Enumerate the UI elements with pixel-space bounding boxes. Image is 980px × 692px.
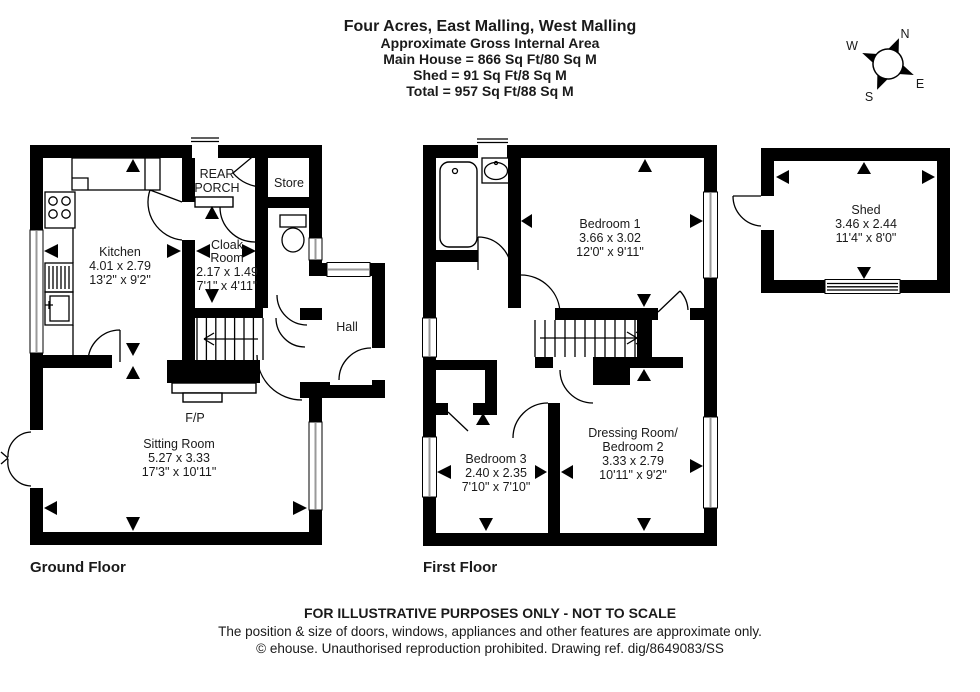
wash-basin (482, 158, 510, 183)
staircase-ground (197, 318, 263, 360)
rear-porch-label-1: REAR (200, 167, 235, 181)
sitting-room-french-door-opening (30, 430, 44, 488)
shed-label: Shed (851, 203, 880, 217)
bedroom-2-dims-imperial: 10'11" x 9'2" (599, 468, 667, 482)
footer-block: FOR ILLUSTRATIVE PURPOSES ONLY - NOT TO … (218, 605, 762, 656)
area-shed: Shed = 91 Sq Ft/8 Sq M (413, 67, 567, 83)
area-total: Total = 957 Sq Ft/88 Sq M (406, 83, 573, 99)
shed-plan: Shed 3.46 x 2.44 11'4" x 8'0" (733, 148, 950, 294)
compass-north-label: N (900, 27, 909, 41)
bedroom-3-dims-imperial: 7'10" x 7'10" (462, 480, 531, 494)
porch-doorway-opening (192, 145, 218, 159)
cloak-room-dims-metric: 2.17 x 1.49 (196, 265, 258, 279)
ground-floor-title: Ground Floor (30, 559, 126, 576)
sitting-room-label: Sitting Room (143, 437, 215, 451)
cooker-hob (45, 192, 75, 228)
area-main-house: Main House = 866 Sq Ft/80 Sq M (383, 51, 597, 67)
cloak-room-label-2: Room (210, 251, 243, 265)
toilet (280, 215, 306, 252)
shed-door-opening (761, 196, 775, 230)
shed-dims-metric: 3.46 x 2.44 (835, 217, 897, 231)
kitchen-sink (45, 263, 73, 325)
sitting-room-dims-metric: 5.27 x 3.33 (148, 451, 210, 465)
kitchen-label: Kitchen (99, 245, 141, 259)
compass-east-label: E (916, 77, 924, 91)
bedroom-2-label-1: Dressing Room/ (588, 426, 678, 440)
compass-rose-icon: N W E S (846, 27, 925, 104)
bedroom-3-label: Bedroom 3 (465, 452, 526, 466)
bedroom-2-dims-metric: 3.33 x 2.79 (602, 454, 664, 468)
porch-step-lines (191, 138, 219, 142)
front-door-opening (372, 348, 386, 380)
bath-tub (440, 162, 477, 247)
store-label: Store (274, 176, 304, 190)
bedroom-1-label: Bedroom 1 (579, 217, 640, 231)
bathroom-window (478, 145, 507, 159)
compass-west-label: W (846, 39, 858, 53)
sitting-room-dims-imperial: 17'3" x 10'11" (142, 465, 217, 479)
cloak-room-label-1: Cloak (211, 238, 244, 252)
page-subtitle: Approximate Gross Internal Area (381, 35, 600, 51)
first-floor-plan: Bedroom 1 3.66 x 3.02 12'0" x 9'11" Bedr… (423, 139, 718, 576)
footer-copyright: © ehouse. Unauthorised reproduction proh… (256, 641, 724, 656)
first-floor-title: First Floor (423, 559, 497, 576)
ground-floor-plan: Kitchen 4.01 x 2.79 13'2" x 9'2" REAR PO… (1, 138, 386, 576)
shed-dims-imperial: 11'4" x 8'0" (836, 231, 897, 245)
compass-south-label: S (865, 90, 873, 104)
bedroom-1-dims-imperial: 12'0" x 9'11" (576, 245, 644, 259)
hall-label: Hall (336, 320, 358, 334)
footer-disclaimer: FOR ILLUSTRATIVE PURPOSES ONLY - NOT TO … (304, 605, 676, 621)
porch-threshold (195, 197, 233, 207)
cloak-room-dims-imperial: 7'1" x 4'11" (197, 279, 258, 293)
fireplace (167, 360, 260, 402)
bedroom-1-dims-metric: 3.66 x 3.02 (579, 231, 641, 245)
rear-porch-label-2: PORCH (194, 181, 239, 195)
page-title: Four Acres, East Malling, West Malling (344, 18, 637, 35)
shed-door-swing (733, 196, 761, 226)
floorplan-page: Four Acres, East Malling, West Malling A… (0, 0, 980, 692)
title-block: Four Acres, East Malling, West Malling A… (344, 18, 637, 99)
kitchen-dims-imperial: 13'2" x 9'2" (89, 273, 151, 287)
footer-approximate: The position & size of doors, windows, a… (218, 624, 762, 639)
bedroom-3-dims-metric: 2.40 x 2.35 (465, 466, 527, 480)
staircase-first (535, 320, 646, 357)
fireplace-label: F/P (185, 411, 204, 425)
floorplan-drawing: Four Acres, East Malling, West Malling A… (0, 0, 980, 692)
french-doors-swing (1, 432, 31, 486)
kitchen-dims-metric: 4.01 x 2.79 (89, 259, 151, 273)
bedroom-2-label-2: Bedroom 2 (602, 440, 663, 454)
